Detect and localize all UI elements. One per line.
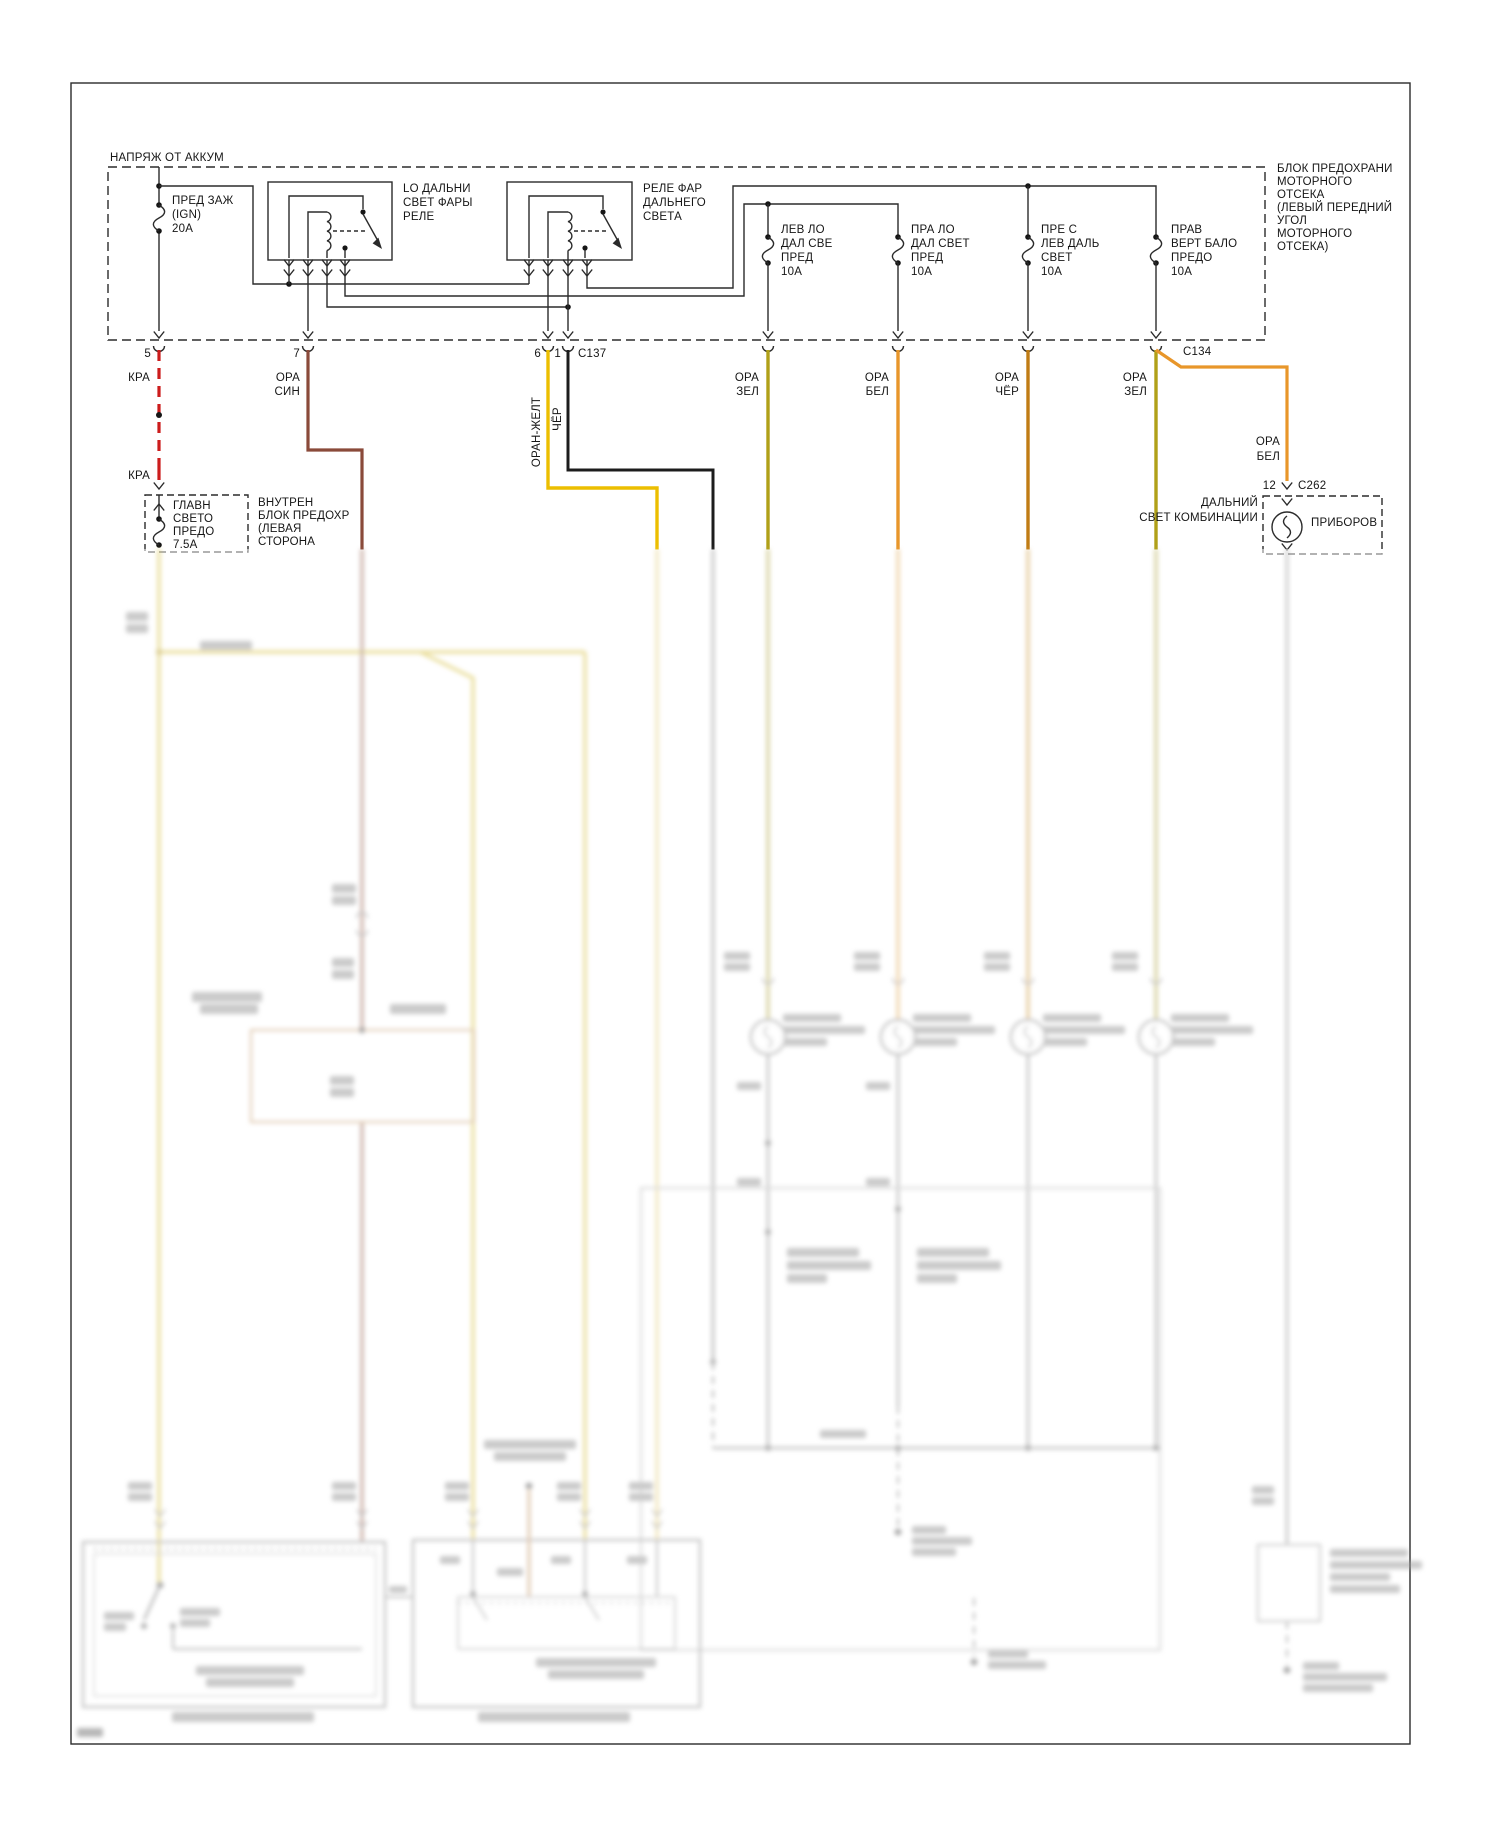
high-beam-relay-label: СВЕТА	[643, 211, 682, 223]
interior-fuse-block-label: (ЛЕВАЯ	[258, 523, 302, 535]
fuse-label: ПРЕД	[911, 252, 943, 264]
fuse-label: ПРЕДО	[1171, 252, 1212, 264]
interior-fuse-block-label: СТОРОНА	[258, 536, 315, 548]
wire-cher: ЧЁР	[552, 350, 713, 550]
battery-box-label: НАПРЯЖ ОТ АККУМ	[110, 152, 224, 164]
wire-ora-cher: ОРА ЧЁР	[995, 350, 1028, 550]
wire-label: ЧЁР	[995, 386, 1019, 398]
fuse-label: 10А	[781, 266, 802, 278]
label-line: УГОЛ	[1277, 215, 1307, 227]
ghost-connector-box	[1258, 1545, 1320, 1621]
interior-fuse-block-label: ВНУТРЕН	[258, 497, 313, 509]
blur-wash	[73, 549, 1409, 1743]
switch-arm-arrow	[613, 238, 622, 249]
fuse-label: 10А	[911, 266, 932, 278]
wire-label-kra2: КРА	[128, 470, 150, 482]
wire-ora-zel-1: ОРА ЗЕЛ	[735, 350, 768, 550]
label-line: (ЛЕВЫЙ ПЕРЕДНИЙ	[1277, 201, 1392, 214]
fuse-right-low: ПРА ЛО ДАЛ СВЕТ ПРЕД 10А	[892, 224, 969, 331]
wire-label: ОРА	[865, 372, 889, 384]
fuse-label: ПРА ЛО	[911, 224, 955, 236]
fuse-label: ПРЕ С	[1041, 224, 1077, 236]
wire-ora-bel-1: ОРА БЕЛ	[865, 350, 898, 550]
fuse-label: ЛЕВ ДАЛЬ	[1041, 238, 1100, 250]
low-beam-relay-label: LO ДАЛЬНИ	[403, 183, 471, 195]
diagram-canvas: НАПРЯЖ ОТ АККУМ БЛОК ПРЕДОХРАНИ МОТОРНОГ…	[0, 0, 1500, 1828]
engine-fuse-block-label: БЛОК ПРЕДОХРАНИ МОТОРНОГО ОТСЕКА (ЛЕВЫЙ …	[1277, 163, 1393, 253]
main-light-fuse-box: ГЛАВН СВЕТО ПРЕДО 7.5А ВНУТРЕН БЛОК ПРЕД…	[145, 495, 350, 552]
wire-label: ОРА	[995, 372, 1019, 384]
pin-7: 7	[293, 348, 300, 360]
ghost-diagram-code	[77, 1728, 103, 1737]
label-line: ОТСЕКА)	[1277, 241, 1329, 253]
fuse-label: ДАЛ СВЕ	[781, 238, 833, 250]
wire-kra-red: КРА КРА	[128, 350, 164, 489]
connector-row: 5 7 6 1 C137 C134	[144, 332, 1211, 361]
wire-label: ЗЕЛ	[736, 386, 759, 398]
wire-oran-zhelt: ОРАН-ЖЕЛТ	[531, 350, 657, 550]
connector-c137: C137	[578, 348, 606, 360]
wire-label-kra: КРА	[128, 372, 150, 384]
main-fuse-label: ПРЕДО	[173, 526, 214, 538]
wire-ora-bel-2-to-cluster: ОРА БЕЛ 12 C262	[1156, 350, 1326, 492]
fuse-label: ПРАВ	[1171, 224, 1202, 236]
connector-c134: C134	[1183, 346, 1212, 358]
cluster-high-beam-indicator: ПРИБОРОВ ДАЛЬНИЙ СВЕТ КОМБИНАЦИИ	[1139, 496, 1382, 554]
wire-label: ОРА	[1123, 372, 1147, 384]
cluster-label: ПРИБОРОВ	[1311, 517, 1377, 529]
fuse-label: СВЕТ	[1041, 252, 1072, 264]
bulb-filament	[1284, 516, 1291, 538]
wire-label-vertical: ЧЁР	[552, 407, 564, 431]
high-beam-relay-label: ДАЛЬНЕГО	[643, 197, 706, 209]
low-beam-relay-label: СВЕТ ФАРЫ	[403, 197, 473, 209]
wire-label: СИН	[275, 386, 300, 398]
fuse-label: 10А	[1041, 266, 1062, 278]
wire-label: БЕЛ	[1257, 451, 1280, 463]
relay-coil	[568, 212, 572, 250]
fuse-label: ЛЕВ ЛО	[781, 224, 825, 236]
label-line: МОТОРНОГО	[1277, 176, 1352, 188]
wiring-diagram-page: НАПРЯЖ ОТ АККУМ БЛОК ПРЕДОХРАНИ МОТОРНОГ…	[0, 0, 1500, 1828]
main-fuse-label: ГЛАВН	[173, 500, 211, 512]
fuse-left-high: ПРЕ С ЛЕВ ДАЛЬ СВЕТ 10А	[1022, 224, 1099, 331]
pin-1: 1	[554, 348, 561, 360]
ignition-fuse-label: (IGN)	[172, 209, 201, 221]
switch-arm-arrow	[373, 238, 382, 249]
wire-label: ОРА	[735, 372, 759, 384]
fuse-label: ДАЛ СВЕТ	[911, 238, 970, 250]
high-beam-relay-label: РЕЛЕ ФАР	[643, 183, 702, 195]
label-line: МОТОРНОГО	[1277, 228, 1352, 240]
wire-label: БЕЛ	[866, 386, 889, 398]
label-line: ОТСЕКА	[1277, 189, 1325, 201]
pin-6: 6	[534, 348, 541, 360]
indicator-label: СВЕТ КОМБИНАЦИИ	[1139, 512, 1258, 524]
fuse-symbol	[153, 205, 164, 231]
indicator-label: ДАЛЬНИЙ	[1201, 496, 1258, 509]
pin-5: 5	[144, 348, 151, 360]
ignition-fuse-label: ПРЕД ЗАЖ	[172, 195, 234, 207]
fuse-left-low: ЛЕВ ЛО ДАЛ СВЕ ПРЕД 10А	[762, 224, 832, 331]
ignition-fuse-label: 20А	[172, 223, 193, 235]
fuse-label: ПРЕД	[781, 252, 813, 264]
label-line: БЛОК ПРЕДОХРАНИ	[1277, 163, 1393, 175]
low-beam-relay-label: РЕЛЕ	[403, 211, 434, 223]
relay-coil	[327, 212, 331, 250]
wire-label: ЗЕЛ	[1124, 386, 1147, 398]
fuse-label: ВЕРТ БАЛО	[1171, 238, 1237, 250]
fuse-right-high: ПРАВ ВЕРТ БАЛО ПРЕДО 10А	[1150, 224, 1237, 331]
wire-label: ОРА	[276, 372, 300, 384]
main-fuse-label: СВЕТО	[173, 513, 213, 525]
interior-fuse-block-label: БЛОК ПРЕДОХР	[258, 510, 350, 522]
pin-12: 12	[1263, 480, 1276, 492]
connector-c262: C262	[1298, 480, 1326, 492]
wire-label: ОРА	[1256, 436, 1280, 448]
fuse-label: 10А	[1171, 266, 1192, 278]
wire-label-vertical: ОРАН-ЖЕЛТ	[531, 397, 543, 467]
